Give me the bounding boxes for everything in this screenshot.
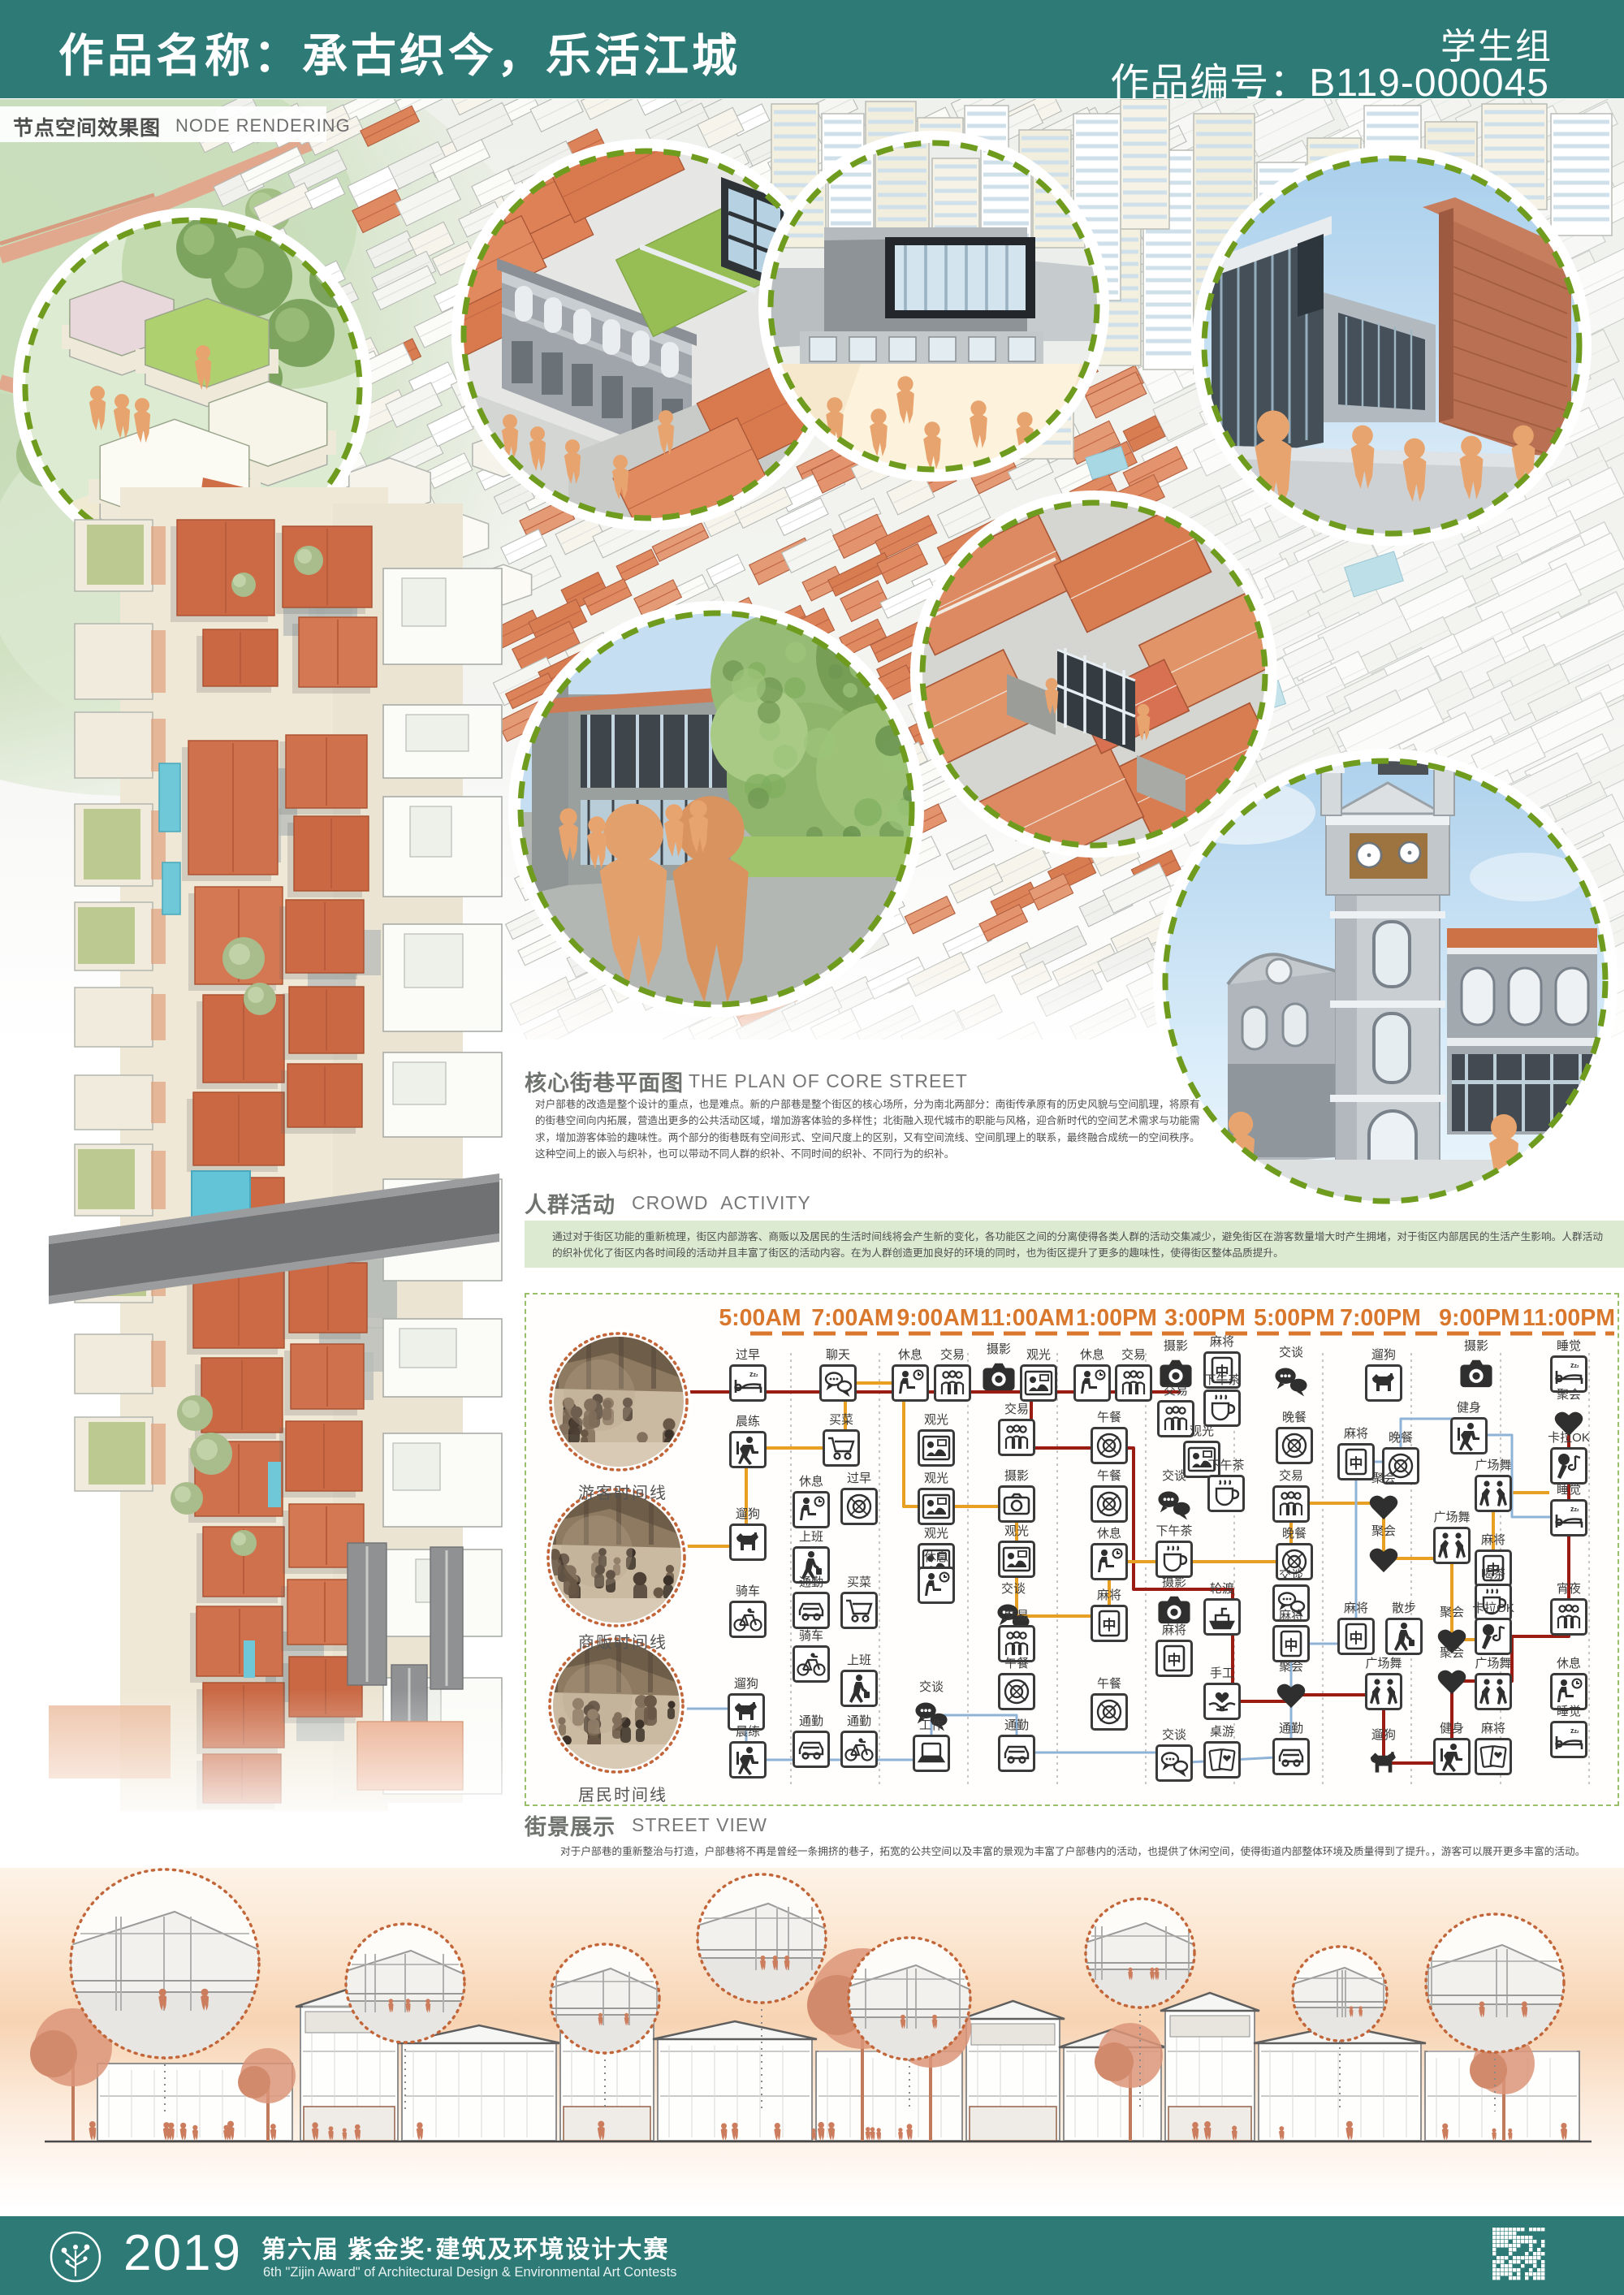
svg-text:zzz: zzz [1570,1727,1579,1735]
svg-text:zzz: zzz [1570,1505,1579,1513]
svg-text:中: 中 [1285,1637,1298,1653]
svg-text:中: 中 [1103,1617,1116,1633]
svg-text:zzz: zzz [1570,1361,1579,1369]
svg-text:中: 中 [1350,1630,1363,1646]
svg-text:zzz: zzz [749,1370,758,1378]
